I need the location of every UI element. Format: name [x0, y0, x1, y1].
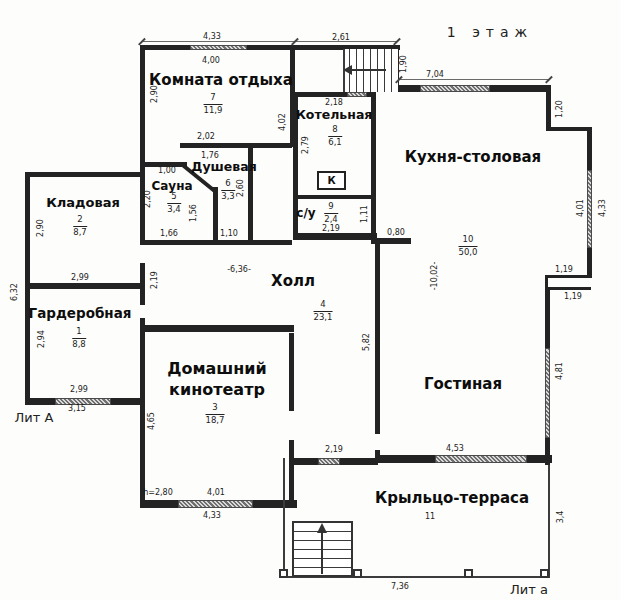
dim-kitchen-stub: 0,80 [387, 228, 405, 237]
room-label-shower: Душевая [191, 159, 256, 174]
room-stat-wardrobe: 18,8 [72, 327, 86, 350]
dim-wardrobe-left: 2,94 [37, 330, 46, 348]
wall [140, 45, 145, 243]
dim-shower-right: 2,60 [236, 179, 245, 197]
dim-annex-left: 6,32 [10, 283, 19, 301]
wall [293, 195, 375, 199]
dim-rest-left: 2,90 [150, 85, 159, 103]
dim-kitchen-right-out: 4,33 [598, 199, 607, 217]
dim-sauna-left: 2,20 [143, 190, 152, 208]
lit-a-porch-label: Лит а [510, 582, 548, 597]
stairs-arrow-icon [321, 532, 323, 574]
dim-hall-upper-left: 4,02 [278, 113, 287, 131]
room-label-cinema-line1: Домашний [167, 359, 267, 378]
dim-porch-bottom: 7,36 [391, 582, 409, 591]
stairs-arrowhead-icon [343, 65, 352, 75]
window [435, 455, 527, 463]
porch-post [540, 569, 549, 578]
dim-shower-bottom: 1,10 [220, 229, 238, 238]
dim-porch-right: 3,4 [556, 511, 565, 524]
wall [25, 283, 145, 289]
wall [213, 187, 218, 245]
room-label-kitchen: Кухня-столовая [405, 148, 541, 166]
room-stat-storage: 28,7 [73, 215, 87, 238]
window [420, 85, 490, 92]
dim-kitchen-depth: -10,02- [430, 262, 439, 291]
dim-hall-left: 2,19 [150, 271, 159, 289]
dim-kitchen-right-in: 4,01 [576, 199, 585, 217]
dim-rest-top-out: 4,33 [203, 32, 221, 41]
dim-shower-top-out: 2,02 [197, 132, 215, 141]
dim-kitchen-step1: 1,19 [555, 265, 573, 274]
porch-post [464, 569, 473, 578]
dim-stairs-top: 2,61 [332, 33, 350, 42]
room-label-wardrobe: Гардеробная [29, 305, 132, 321]
room-stat-rest: 711,9 [204, 93, 223, 116]
dim-stairs-height: 1,90 [399, 55, 408, 73]
dim-sauna-top: 1,00 [158, 166, 176, 175]
wall [548, 275, 592, 278]
room-stat-kitchen: 1050,0 [459, 235, 478, 258]
wall [140, 318, 145, 508]
window [587, 170, 592, 248]
dim-storage-left: 2,90 [36, 219, 45, 237]
dim-hall-right: 5,82 [362, 333, 371, 351]
window [190, 45, 247, 50]
boiler-k-box: К [317, 171, 346, 190]
room-label-storage: Кладовая [46, 195, 120, 210]
dim-kitchen-step: 1,20 [555, 100, 564, 118]
dimension-line [142, 41, 398, 42]
dim-hall-width: -6,36- [227, 265, 251, 274]
wall [140, 240, 292, 245]
stairs-arrow-icon [350, 69, 386, 71]
wall [180, 143, 292, 148]
dimension-tick [545, 76, 552, 83]
room-stat-wc: 92,4 [324, 202, 338, 225]
room-stat-cinema: 318,7 [206, 403, 225, 426]
wall [375, 244, 380, 434]
porch-post [279, 569, 288, 578]
wall [289, 333, 294, 411]
window [178, 500, 253, 508]
floor-title: 1 этаж [447, 24, 533, 40]
dim-hall-porch: 2,19 [325, 445, 343, 454]
room-label-rest: Комната отдыха [149, 71, 293, 89]
dim-wc-right: 1,11 [360, 205, 369, 223]
dim-sauna-bottom: 1,66 [160, 229, 178, 238]
wall [293, 233, 377, 240]
room-stat-porch: 11 [425, 512, 435, 521]
wall [289, 440, 294, 508]
room-label-cinema-line2: кинотеатр [169, 380, 265, 399]
dim-rest-top-in: 4,00 [202, 56, 220, 65]
dim-cinema-bottom-out: 4,33 [203, 511, 221, 520]
dim-cinema-height: h=2,80 [143, 488, 173, 497]
porch-post [353, 569, 362, 578]
dim-cinema-left: 4,65 [147, 412, 156, 430]
dim-living-right: 4,81 [555, 362, 564, 380]
porch-edge [548, 465, 550, 578]
room-stat-boiler: 86,1 [328, 125, 342, 148]
dim-boiler-top: 2,18 [325, 98, 343, 107]
dim-storage-bottom: 2,99 [71, 273, 89, 282]
wall [546, 85, 551, 131]
room-label-wc: с/у [296, 206, 315, 220]
room-label-boiler: Котельная [296, 107, 373, 122]
porch-edge [283, 458, 285, 578]
room-stat-sauna: 53,4 [167, 192, 181, 215]
dim-sauna-right: 1,56 [189, 204, 198, 222]
wall [546, 127, 592, 131]
dimension-line [399, 79, 549, 80]
dim-boiler-left: 2,79 [301, 136, 310, 154]
wall [140, 325, 294, 332]
door-threshold [318, 458, 340, 465]
dim-wardrobe-bottom: 2,99 [70, 385, 88, 394]
dim-shower-top-in: 1,76 [201, 151, 219, 160]
dim-kitchen-step2: 1,19 [564, 292, 582, 301]
floor-plan: 1 этаж Лит А Лит а К Комната отдыха Коте… [0, 0, 621, 600]
dim-wardrobe-bottom-out: 3,15 [68, 404, 86, 413]
room-stat-hall: 423,1 [314, 300, 333, 323]
stairs-arrowhead-icon [317, 523, 327, 533]
wall [545, 287, 591, 290]
room-label-living: Гостиная [424, 375, 502, 393]
dim-wc-bottom: 2,19 [322, 224, 340, 233]
window [545, 348, 550, 438]
lit-a-label: Лит А [15, 410, 54, 425]
room-label-hall: Холл [271, 272, 315, 290]
room-label-porch: Крыльцо-терраса [375, 489, 529, 507]
room-stat-shower: 63,3 [221, 179, 235, 202]
dim-kitchen-top: 7,04 [426, 70, 444, 79]
door-threshold [347, 92, 367, 97]
wall [25, 172, 145, 177]
dim-living-bottom: 4,53 [446, 444, 464, 453]
dim-cinema-bottom-in: 4,01 [207, 488, 225, 497]
